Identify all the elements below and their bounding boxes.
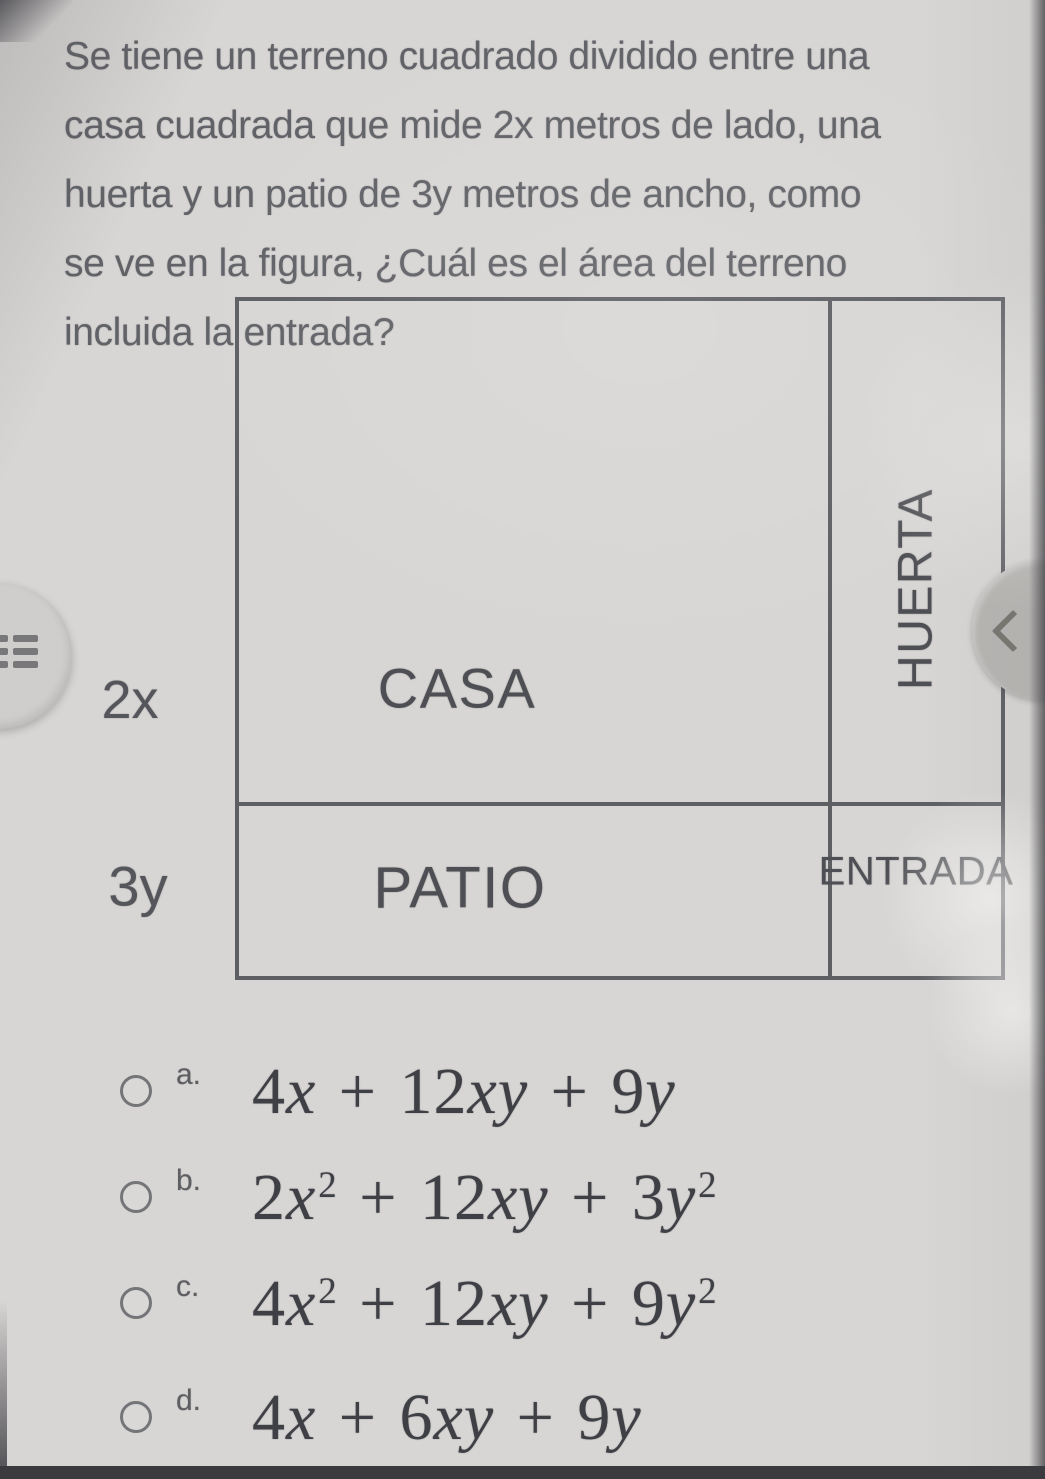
option-d-row[interactable]: d. 4x + 6xy + 9y	[0, 1370, 1010, 1466]
option-c-key: c.	[176, 1270, 199, 1304]
question-line: huerta y un patio de 3y metros de ancho,…	[64, 160, 881, 229]
question-line: casa cuadrada que mide 2x metros de lado…	[64, 91, 881, 160]
huerta-label: HUERTA	[889, 488, 944, 690]
dimension-3y-label: 3y	[108, 854, 167, 919]
option-b-key: b.	[176, 1164, 201, 1198]
casa-label: CASA	[378, 656, 537, 721]
entrada-label: ENTRADA	[819, 850, 1014, 895]
patio-label: PATIO	[374, 855, 547, 922]
screen-edge-top-left	[0, 0, 72, 42]
option-d-formula: 4x + 6xy + 9y	[252, 1380, 642, 1456]
option-c-formula: 4x2 + 12xy + 9y2	[252, 1266, 717, 1342]
option-b-row[interactable]: b. 2x2 + 12xy + 3y2	[0, 1150, 1010, 1246]
question-line: se ve en la figura, ¿Cuál es el área del…	[64, 229, 881, 298]
option-c-radio[interactable]	[120, 1287, 152, 1319]
chevron-left-icon	[992, 610, 1034, 652]
question-line: Se tiene un terreno cuadrado dividido en…	[64, 22, 881, 91]
option-b-radio[interactable]	[120, 1181, 152, 1213]
option-a-formula: 4x + 12xy + 9y	[252, 1054, 676, 1130]
terrain-figure: CASA HUERTA PATIO ENTRADA	[235, 297, 1005, 980]
option-d-key: d.	[176, 1384, 201, 1418]
dimension-2x-label: 2x	[101, 669, 158, 731]
patio-divider-line	[235, 802, 1005, 806]
screen-edge-bottom	[0, 1466, 1045, 1479]
option-b-formula: 2x2 + 12xy + 3y2	[252, 1160, 717, 1236]
option-a-key: a.	[176, 1058, 201, 1092]
option-d-radio[interactable]	[120, 1401, 152, 1433]
menu-tab[interactable]	[0, 583, 72, 729]
quiz-screen: Se tiene un terreno cuadrado dividido en…	[0, 0, 1045, 1479]
screen-edge-right	[1029, 0, 1045, 1479]
option-a-radio[interactable]	[120, 1075, 152, 1107]
option-a-row[interactable]: a. 4x + 12xy + 9y	[0, 1044, 1010, 1140]
option-c-row[interactable]: c. 4x2 + 12xy + 9y2	[0, 1256, 1010, 1352]
bulleted-list-menu-icon	[0, 635, 38, 674]
